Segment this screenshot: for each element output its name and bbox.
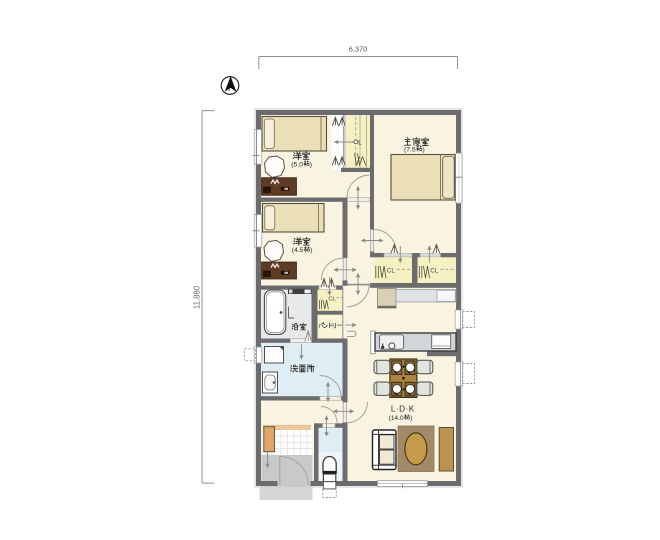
- svg-text:(14.0: (14.0: [389, 415, 404, 422]
- svg-text:CL: CL: [430, 268, 439, 275]
- svg-text:6,370: 6,370: [349, 45, 368, 54]
- svg-text:L·D·K: L·D·K: [391, 405, 415, 414]
- svg-text:): ): [310, 161, 312, 168]
- svg-text:(4.5: (4.5: [292, 247, 304, 254]
- svg-text:): ): [410, 415, 412, 422]
- svg-text:11,880: 11,880: [193, 285, 202, 309]
- svg-text:): ): [423, 146, 425, 153]
- svg-text:CL: CL: [387, 268, 396, 275]
- svg-text:(5.0: (5.0: [291, 161, 303, 168]
- svg-text:(7.5: (7.5: [404, 146, 416, 153]
- svg-text:CL: CL: [329, 296, 337, 302]
- svg-text:): ): [310, 247, 312, 254]
